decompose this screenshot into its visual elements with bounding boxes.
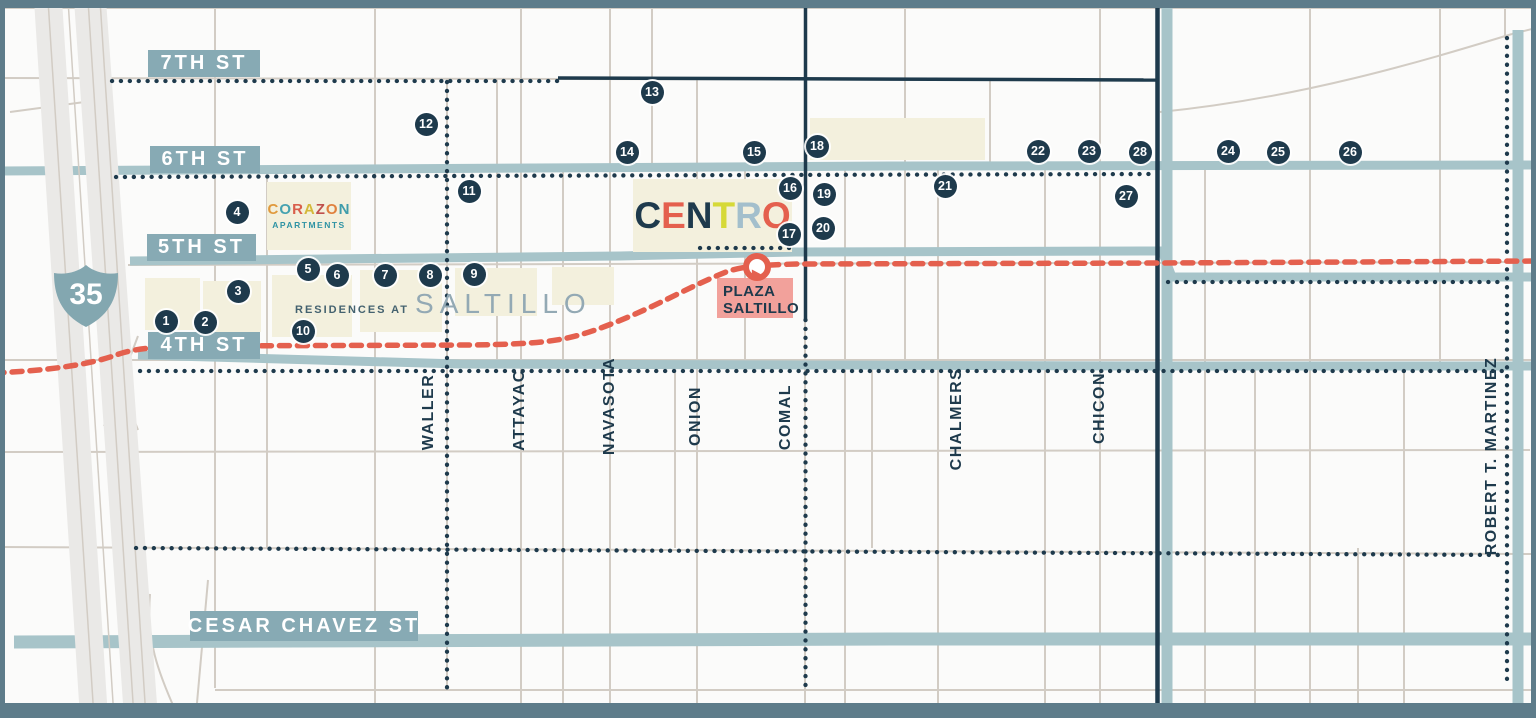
map-marker-3[interactable]: 3	[227, 280, 250, 303]
corazon-letter-n: N	[339, 201, 351, 218]
map-marker-20[interactable]: 20	[812, 217, 835, 240]
map-marker-5[interactable]: 5	[297, 258, 320, 281]
map-marker-10[interactable]: 10	[292, 320, 315, 343]
map-marker-28[interactable]: 28	[1129, 141, 1152, 164]
centro-letter-r: R	[735, 197, 762, 234]
map-marker-16[interactable]: 16	[779, 177, 802, 200]
corazon-letter-z: Z	[316, 201, 326, 218]
cross-street-label-onion: ONION	[687, 386, 705, 446]
interstate-35-shield: 35	[52, 263, 120, 329]
map-marker-21[interactable]: 21	[934, 175, 957, 198]
map-frame: 35 7TH ST 6TH ST 5TH ST 4TH ST CESAR CHA…	[0, 0, 1536, 718]
interstate-number: 35	[52, 278, 120, 312]
residences-prefix: RESIDENCES AT	[295, 304, 409, 316]
street-badge-6th: 6TH ST	[150, 146, 260, 173]
map-marker-26[interactable]: 26	[1339, 141, 1362, 164]
plaza-line2: SALTILLO	[723, 300, 799, 317]
map-marker-12[interactable]: 12	[415, 113, 438, 136]
cross-street-label-navasota: NAVASOTA	[601, 357, 619, 455]
cross-street-label-chalmers: CHALMERS	[948, 368, 966, 471]
cross-street-label-comal: COMAL	[777, 384, 795, 450]
map-marker-25[interactable]: 25	[1267, 141, 1290, 164]
centro-letter-n: N	[686, 197, 713, 234]
map-marker-1[interactable]: 1	[155, 310, 178, 333]
map-marker-15[interactable]: 15	[743, 141, 766, 164]
corazon-letter-o: O	[279, 201, 292, 218]
corazon-apartments-logo: CORAZON APARTMENTS	[267, 182, 351, 250]
frame-edge-right	[1531, 0, 1536, 718]
map-marker-2[interactable]: 2	[194, 311, 217, 334]
residences-name: SALTILLO	[415, 288, 592, 320]
map-marker-8[interactable]: 8	[419, 264, 442, 287]
cross-street-label-chicon: CHICON	[1091, 372, 1109, 444]
map-marker-13[interactable]: 13	[641, 81, 664, 104]
plaza-saltillo-station-pin[interactable]	[743, 253, 771, 281]
plaza-saltillo-label: PLAZA SALTILLO	[723, 283, 799, 318]
map-marker-27[interactable]: 27	[1115, 185, 1138, 208]
map-marker-17[interactable]: 17	[778, 223, 801, 246]
plaza-line1: PLAZA	[723, 283, 799, 300]
centro-logo: CENTRO	[633, 179, 792, 252]
map-marker-14[interactable]: 14	[616, 141, 639, 164]
map-marker-11[interactable]: 11	[458, 180, 481, 203]
street-badge-cesar-chavez: CESAR CHAVEZ ST	[190, 611, 418, 641]
map-marker-24[interactable]: 24	[1217, 140, 1240, 163]
centro-letter-t: T	[713, 197, 736, 234]
corazon-subtitle: APARTMENTS	[272, 220, 345, 230]
map-marker-19[interactable]: 19	[813, 183, 836, 206]
map-marker-7[interactable]: 7	[374, 264, 397, 287]
corazon-letter-r: R	[292, 201, 304, 218]
frame-edge-left	[0, 0, 5, 718]
street-badge-4th: 4TH ST	[148, 332, 260, 359]
corazon-letter-a: A	[304, 201, 316, 218]
cross-street-label-attayac: ATTAYAC	[511, 369, 529, 451]
corazon-letter-o: O	[326, 201, 339, 218]
map-marker-9[interactable]: 9	[463, 263, 486, 286]
corazon-letter-c: C	[268, 201, 280, 218]
centro-letter-e: E	[661, 197, 686, 234]
street-badge-7th: 7TH ST	[148, 50, 260, 77]
centro-letter-c: C	[634, 197, 661, 234]
frame-edge-top	[0, 0, 1536, 8]
cross-street-label-waller: WALLER	[420, 374, 438, 451]
map-marker-22[interactable]: 22	[1027, 140, 1050, 163]
residences-at-saltillo-label: RESIDENCES AT SALTILLO	[295, 288, 495, 320]
frame-edge-bottom	[0, 703, 1536, 718]
map-marker-23[interactable]: 23	[1078, 140, 1101, 163]
corazon-name: CORAZON	[268, 202, 351, 217]
map-marker-18[interactable]: 18	[806, 135, 829, 158]
map-marker-6[interactable]: 6	[326, 264, 349, 287]
cross-street-label-robert-t-martinez: ROBERT T. MARTINEZ	[1483, 357, 1501, 556]
map-marker-4[interactable]: 4	[226, 201, 249, 224]
street-badge-5th: 5TH ST	[147, 234, 256, 261]
